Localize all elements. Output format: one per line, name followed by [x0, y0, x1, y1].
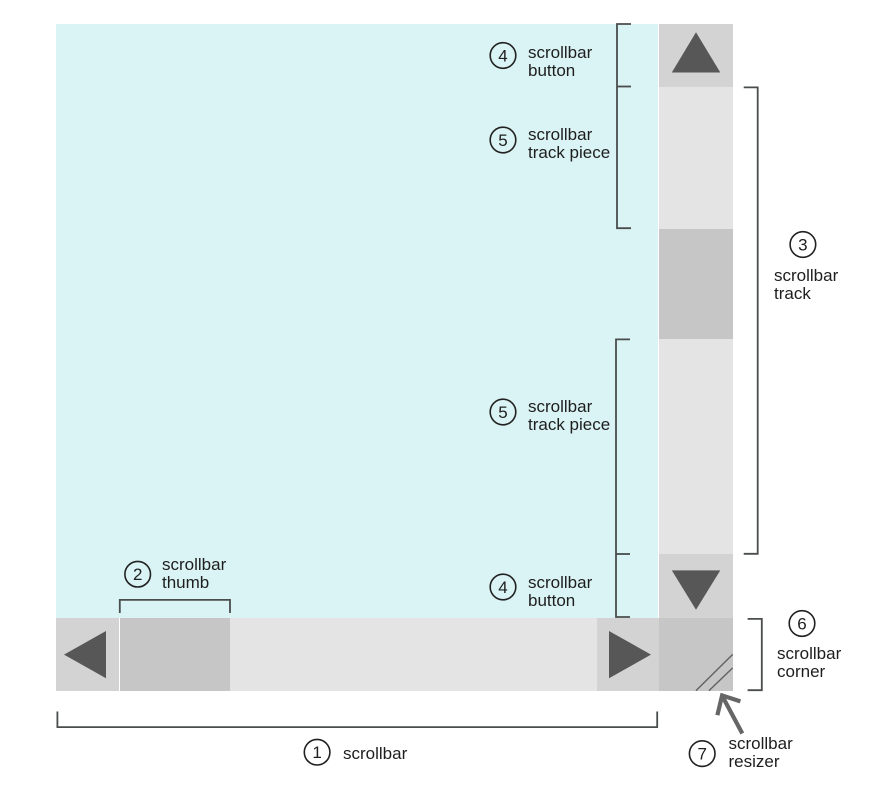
svg-text:7: 7 — [697, 745, 706, 764]
svg-text:1: 1 — [312, 743, 321, 762]
svg-text:5: 5 — [498, 131, 507, 150]
svg-text:5: 5 — [498, 403, 507, 422]
svg-text:3: 3 — [798, 236, 807, 255]
svg-text:4: 4 — [498, 578, 507, 597]
svg-text:6: 6 — [797, 615, 806, 634]
svg-text:2: 2 — [133, 565, 142, 584]
svg-text:4: 4 — [498, 47, 507, 66]
